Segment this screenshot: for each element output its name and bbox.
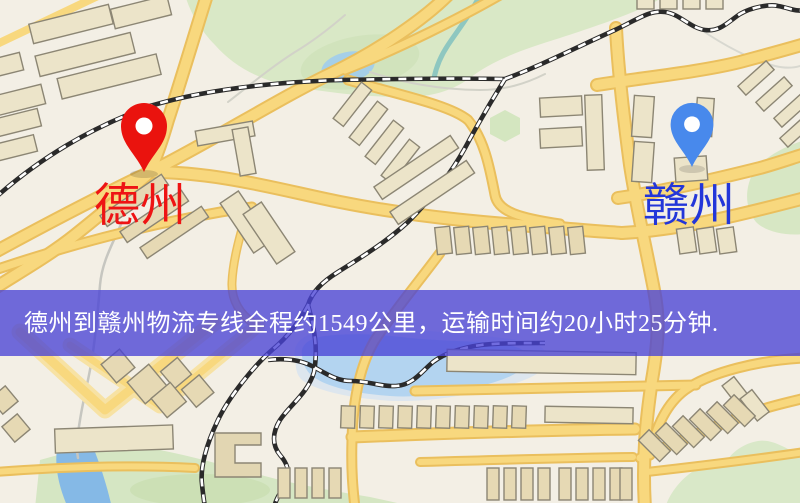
info-banner-text: 德州到赣州物流专线全程约1549公里，运输时间约20小时25分钟. <box>24 310 719 337</box>
map-screenshot: 德州 赣州 德州到赣州物流专线全程约1549公里，运输时间约20小时25分钟. <box>0 0 800 503</box>
origin-label: 德州 <box>94 180 186 231</box>
destination-label: 赣州 <box>643 180 735 231</box>
info-banner: 德州到赣州物流专线全程约1549公里，运输时间约20小时25分钟. <box>0 290 800 356</box>
map-canvas: 德州 赣州 德州到赣州物流专线全程约1549公里，运输时间约20小时25分钟. <box>0 0 800 503</box>
